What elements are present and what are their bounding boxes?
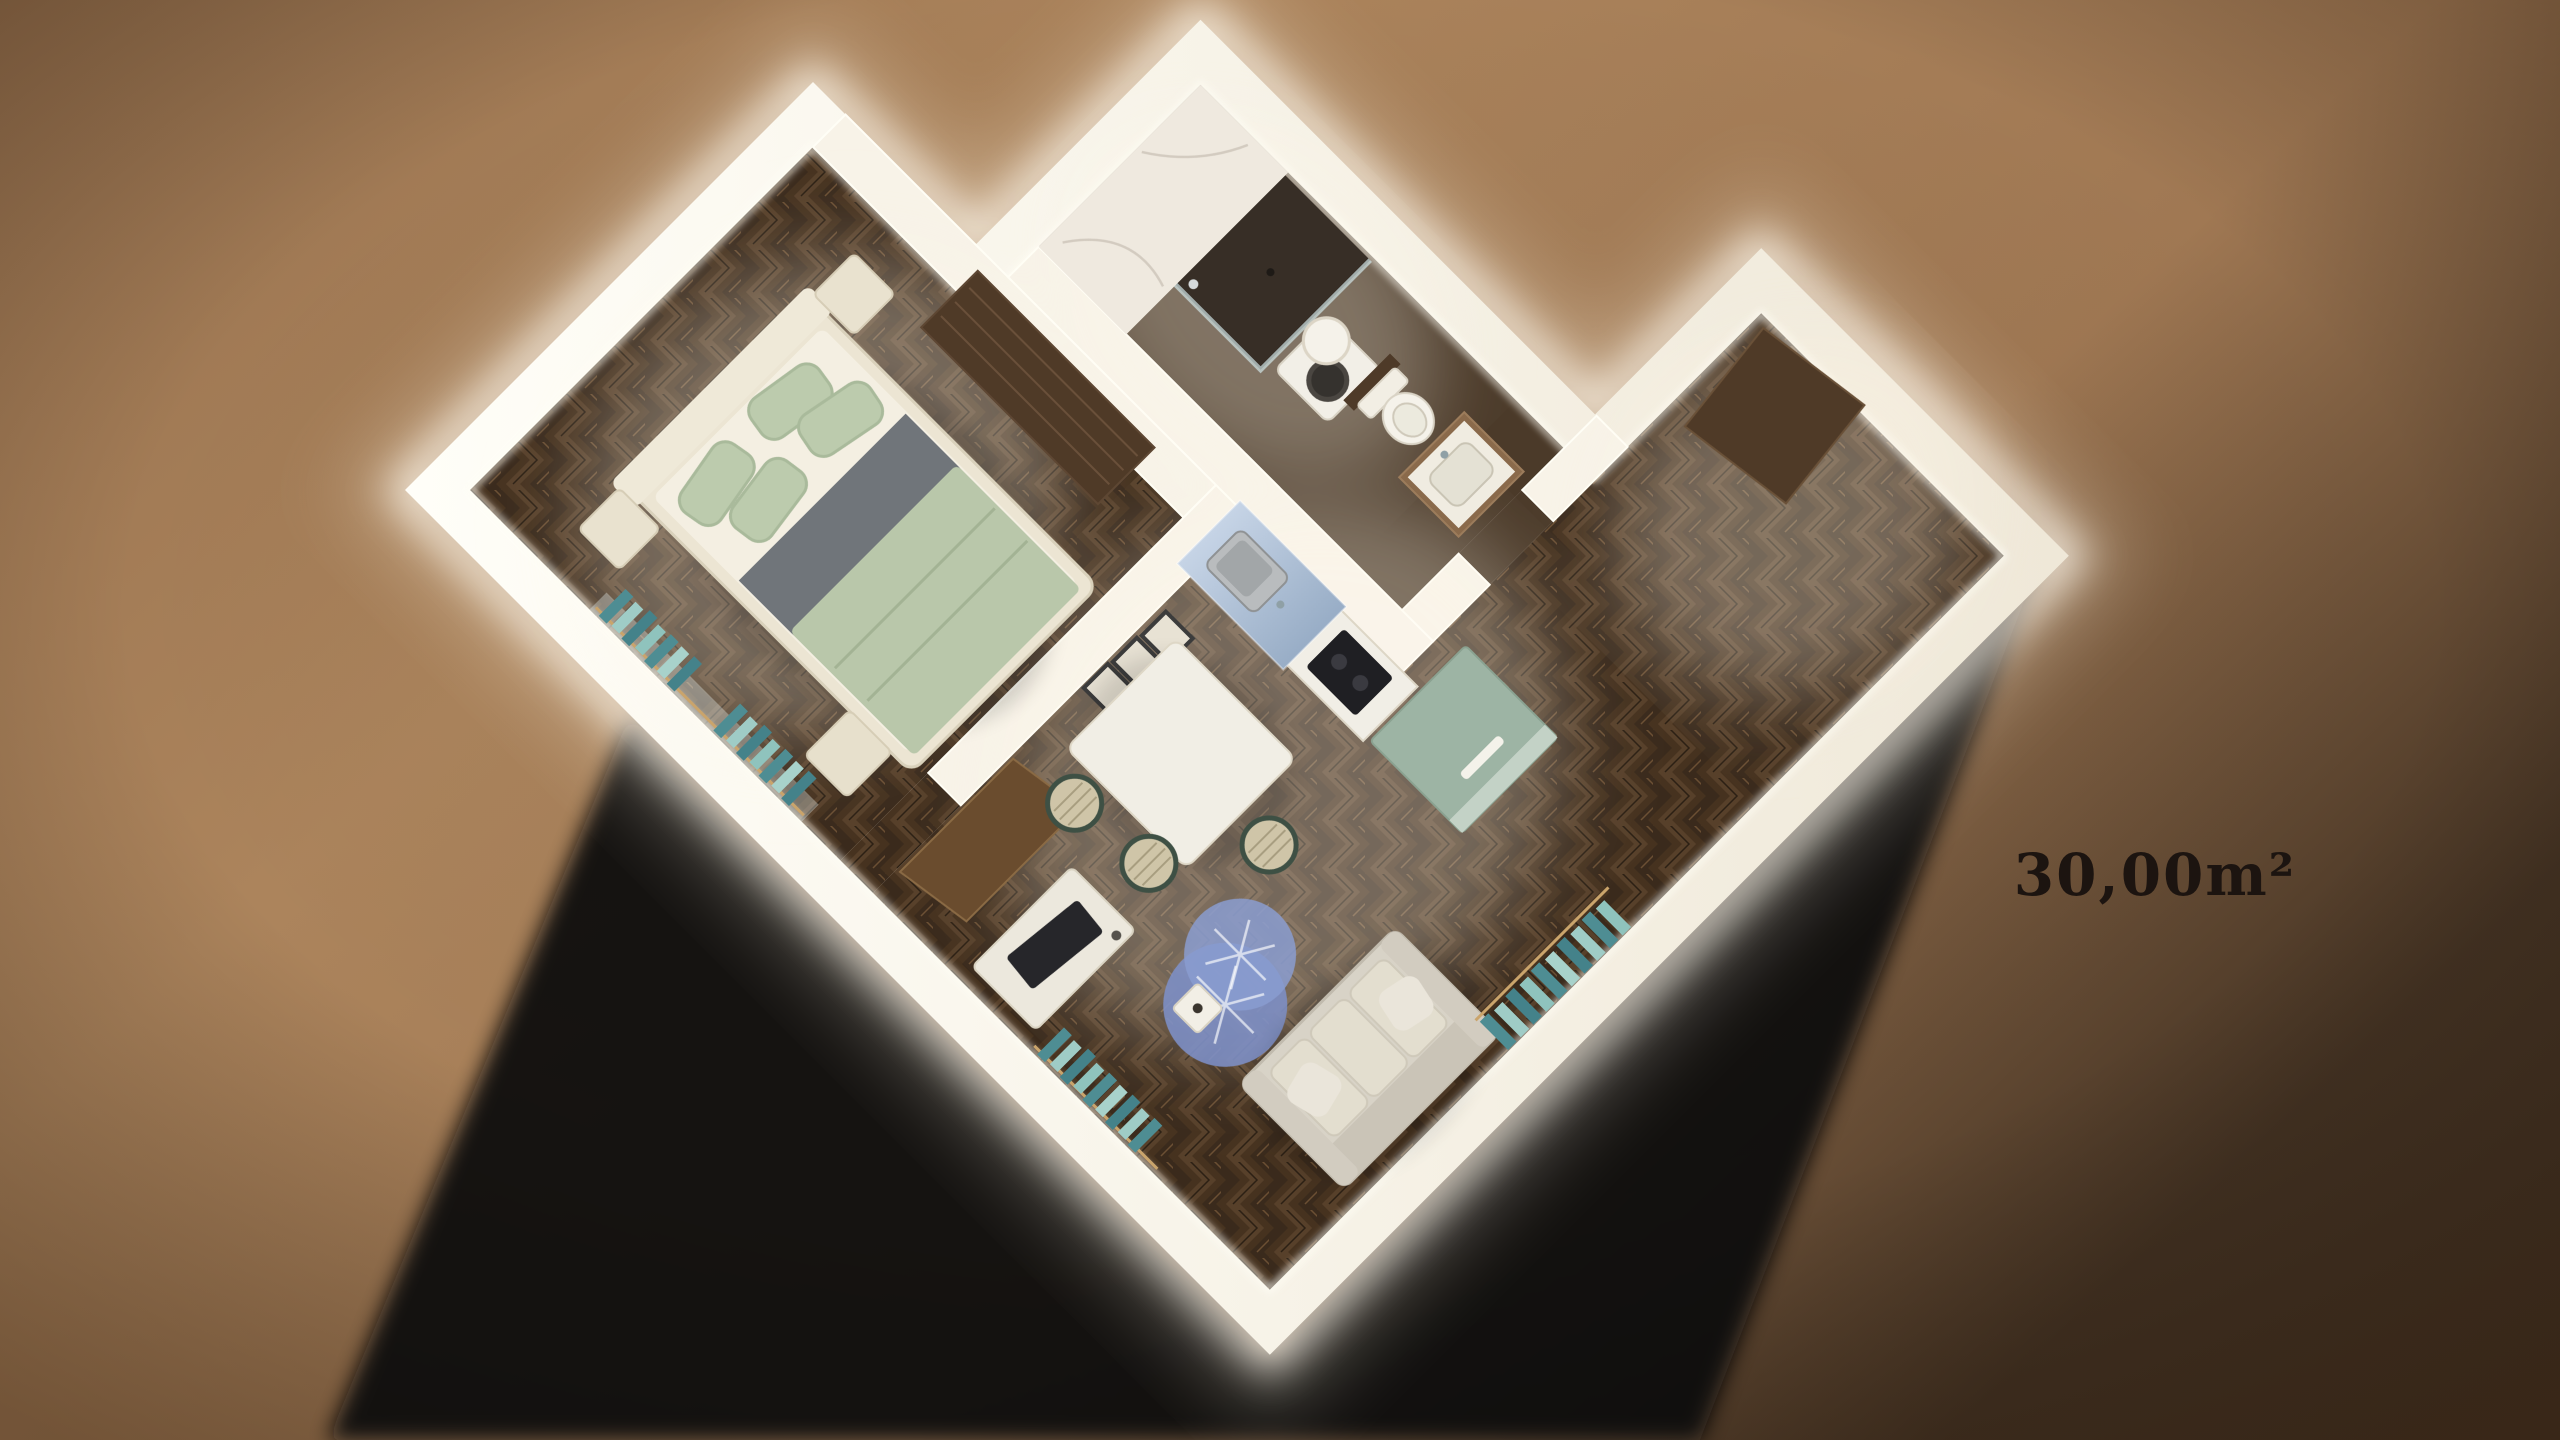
floorplan-render: 30,00m² — [0, 0, 2560, 1440]
render-canvas: 30,00m² — [0, 0, 2560, 1440]
area-label: 30,00m² — [2014, 841, 2296, 909]
